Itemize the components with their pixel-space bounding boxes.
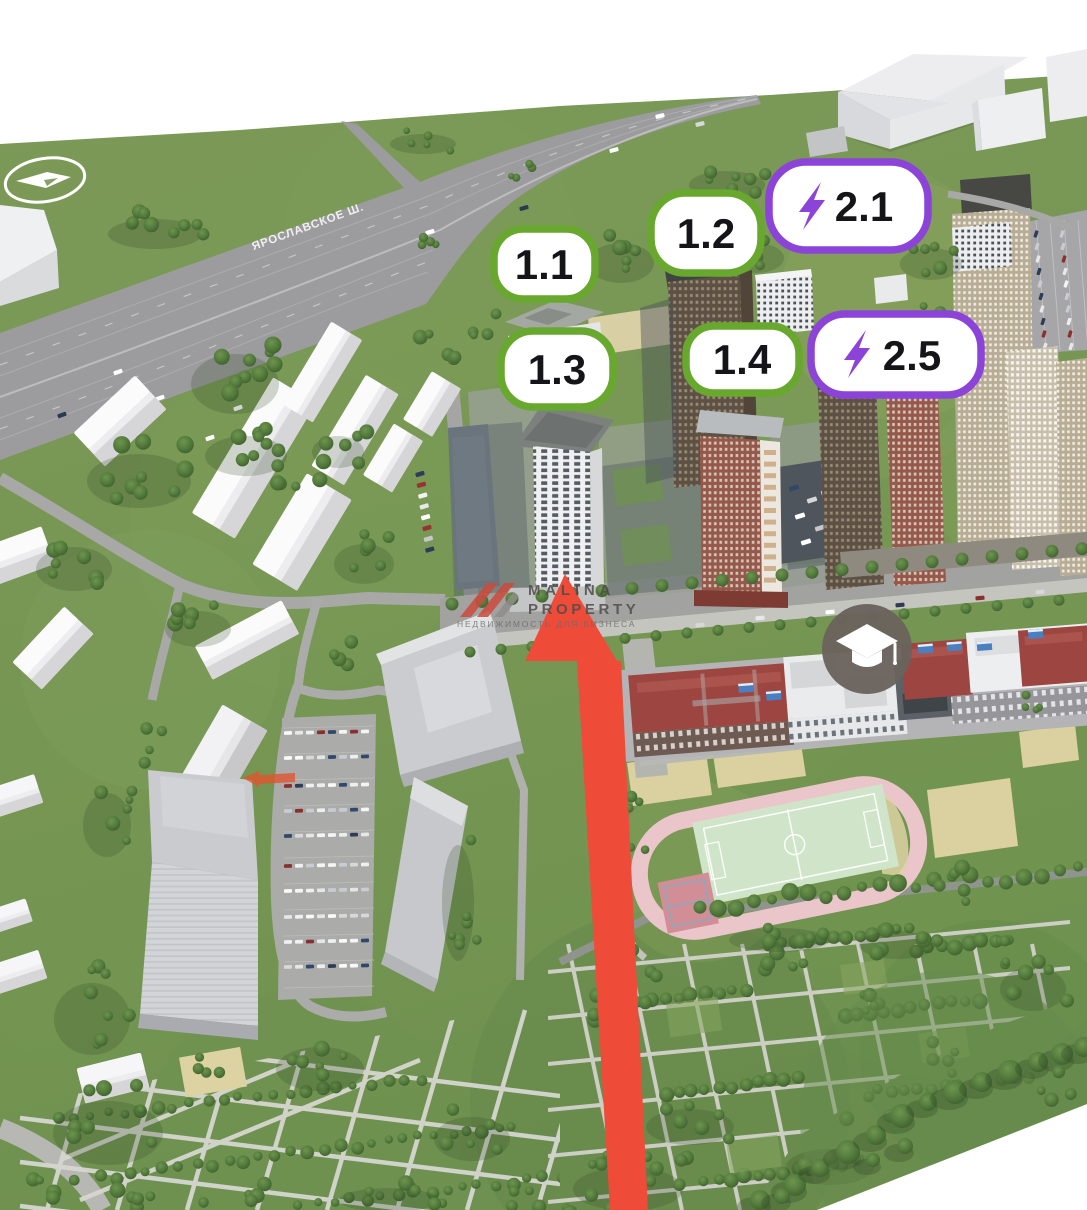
svg-text:MALINA: MALINA <box>528 582 615 599</box>
svg-text:1.1: 1.1 <box>515 241 573 288</box>
svg-text:НЕДВИЖИМОСТЬ ДЛЯ БИЗНЕСА: НЕДВИЖИМОСТЬ ДЛЯ БИЗНЕСА <box>457 619 636 629</box>
svg-text:2.5: 2.5 <box>883 332 941 379</box>
svg-text:PROPERTY: PROPERTY <box>528 601 639 618</box>
svg-text:2.1: 2.1 <box>835 183 893 230</box>
svg-text:1.3: 1.3 <box>528 346 586 393</box>
svg-text:1.4: 1.4 <box>713 336 772 383</box>
svg-text:1.2: 1.2 <box>677 210 735 257</box>
